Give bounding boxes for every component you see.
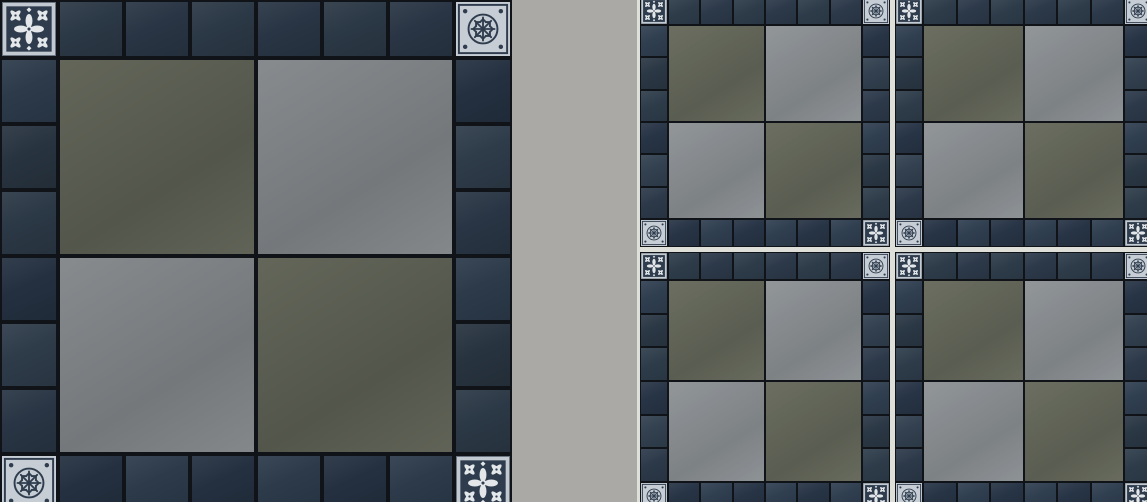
ornament-tile-snowflake: [1125, 253, 1147, 279]
border-tile: [641, 449, 667, 481]
border-tile: [896, 58, 922, 88]
border-tile: [1025, 483, 1057, 502]
border-tile: [390, 2, 452, 56]
border-tile: [641, 416, 667, 448]
ornament-tile-snowflake: [641, 220, 667, 246]
border-tile: [456, 126, 510, 188]
paver-tile-olive: [924, 26, 1023, 121]
border-tile: [734, 253, 764, 279]
border-tile: [924, 0, 956, 24]
snowflake-ornament-icon: [641, 220, 667, 246]
paver-tile-gray: [1025, 281, 1124, 380]
border-tile: [2, 126, 56, 188]
border-tile: [324, 456, 386, 502]
border-tile: [641, 58, 667, 88]
tile-pattern-preview: [0, 0, 1147, 502]
border-tile: [958, 220, 990, 246]
border-tile: [863, 123, 889, 153]
paver-tile-olive: [766, 123, 861, 218]
border-tile: [324, 2, 386, 56]
paver-tile-gray: [669, 123, 764, 218]
border-tile: [701, 253, 731, 279]
border-tile: [126, 456, 188, 502]
floral-ornament-icon: [456, 456, 510, 502]
border-tile: [863, 26, 889, 56]
tile-module: [0, 0, 512, 502]
border-tile: [641, 281, 667, 313]
border-tile: [958, 0, 990, 24]
border-tile: [863, 188, 889, 218]
border-tile: [734, 483, 764, 502]
border-tile: [1092, 483, 1124, 502]
paver-tile-gray: [924, 382, 1023, 481]
border-tile: [734, 220, 764, 246]
border-tile: [641, 348, 667, 380]
ornament-tile-floral: [863, 483, 889, 502]
border-tile: [192, 2, 254, 56]
border-tile: [831, 483, 861, 502]
border-tile: [896, 416, 922, 448]
border-tile: [863, 315, 889, 347]
panel-divider: [512, 0, 637, 502]
border-tile: [1058, 220, 1090, 246]
tile-module: [640, 0, 890, 247]
border-tile: [456, 324, 510, 386]
border-tile: [258, 456, 320, 502]
ornament-tile-snowflake: [1125, 0, 1147, 24]
border-tile: [1058, 253, 1090, 279]
border-tile: [1125, 281, 1147, 313]
border-tile: [641, 91, 667, 121]
snowflake-ornament-icon: [1125, 0, 1147, 24]
floral-ornament-icon: [2, 2, 56, 56]
border-tile: [60, 456, 122, 502]
border-tile: [958, 253, 990, 279]
border-tile: [641, 315, 667, 347]
snowflake-ornament-icon: [456, 2, 510, 56]
border-tile: [390, 456, 452, 502]
floral-ornament-icon: [863, 483, 889, 502]
module-detail-panel: [0, 0, 512, 502]
border-tile: [641, 382, 667, 414]
paver-tile-olive: [766, 382, 861, 481]
border-tile: [456, 60, 510, 122]
snowflake-ornament-icon: [1125, 253, 1147, 279]
border-tile: [1125, 315, 1147, 347]
snowflake-ornament-icon: [2, 456, 56, 502]
floral-ornament-icon: [1125, 220, 1147, 246]
border-tile: [669, 483, 699, 502]
border-tile: [896, 26, 922, 56]
border-tile: [798, 253, 828, 279]
border-tile: [1092, 0, 1124, 24]
border-tile: [701, 483, 731, 502]
border-tile: [1125, 416, 1147, 448]
border-tile: [1058, 483, 1090, 502]
floral-ornament-icon: [863, 220, 889, 246]
border-tile: [1058, 0, 1090, 24]
border-tile: [1092, 253, 1124, 279]
border-tile: [456, 258, 510, 320]
border-tile: [831, 253, 861, 279]
border-tile: [641, 26, 667, 56]
border-tile: [924, 483, 956, 502]
snowflake-ornament-icon: [896, 220, 922, 246]
border-tile: [60, 2, 122, 56]
border-tile: [456, 192, 510, 254]
floral-ornament-icon: [641, 253, 667, 279]
border-tile: [798, 0, 828, 24]
border-tile: [734, 0, 764, 24]
border-tile: [1125, 188, 1147, 218]
ornament-tile-snowflake: [896, 220, 922, 246]
border-tile: [863, 91, 889, 121]
border-tile: [126, 2, 188, 56]
border-tile: [2, 192, 56, 254]
ornament-tile-floral: [641, 0, 667, 24]
tile-module: [895, 252, 1147, 502]
paver-tile-olive: [1025, 382, 1124, 481]
paver-tile-olive: [258, 258, 452, 452]
border-tile: [2, 60, 56, 122]
border-tile: [192, 456, 254, 502]
border-tile: [2, 258, 56, 320]
border-tile: [766, 0, 796, 24]
paver-tile-olive: [60, 60, 254, 254]
ornament-tile-floral: [863, 220, 889, 246]
border-tile: [1125, 58, 1147, 88]
paver-tile-gray: [60, 258, 254, 452]
border-tile: [641, 188, 667, 218]
ornament-tile-floral: [1125, 220, 1147, 246]
border-tile: [1025, 0, 1057, 24]
border-tile: [766, 483, 796, 502]
border-tile: [896, 348, 922, 380]
tile-module: [895, 0, 1147, 247]
paver-tile-gray: [258, 60, 452, 254]
floral-ornament-icon: [896, 253, 922, 279]
border-tile: [991, 483, 1023, 502]
border-tile: [863, 281, 889, 313]
border-tile: [1125, 382, 1147, 414]
paver-tile-gray: [669, 382, 764, 481]
repeat-grid: [640, 0, 1147, 502]
floral-ornament-icon: [896, 0, 922, 24]
ornament-tile-snowflake: [896, 483, 922, 502]
ornament-tile-floral: [641, 253, 667, 279]
snowflake-ornament-icon: [863, 253, 889, 279]
border-tile: [641, 123, 667, 153]
ornament-tile-snowflake: [863, 0, 889, 24]
ornament-tile-floral: [1125, 483, 1147, 502]
border-tile: [1125, 91, 1147, 121]
paver-tile-olive: [669, 26, 764, 121]
border-tile: [896, 449, 922, 481]
border-tile: [701, 220, 731, 246]
border-tile: [669, 0, 699, 24]
border-tile: [1092, 220, 1124, 246]
ornament-tile-snowflake: [641, 483, 667, 502]
border-tile: [669, 253, 699, 279]
paver-tile-gray: [766, 281, 861, 380]
ornament-tile-snowflake: [863, 253, 889, 279]
snowflake-ornament-icon: [641, 483, 667, 502]
floral-ornament-icon: [1125, 483, 1147, 502]
ornament-tile-floral: [2, 2, 56, 56]
border-tile: [863, 155, 889, 185]
border-tile: [1125, 449, 1147, 481]
border-tile: [924, 220, 956, 246]
ornament-tile-snowflake: [456, 2, 510, 56]
border-tile: [896, 155, 922, 185]
border-tile: [831, 0, 861, 24]
border-tile: [896, 91, 922, 121]
border-tile: [1125, 155, 1147, 185]
border-tile: [1125, 26, 1147, 56]
border-tile: [2, 324, 56, 386]
border-tile: [958, 483, 990, 502]
paver-tile-olive: [924, 281, 1023, 380]
border-tile: [863, 449, 889, 481]
border-tile: [896, 281, 922, 313]
border-tile: [669, 220, 699, 246]
border-tile: [1125, 123, 1147, 153]
ornament-tile-floral: [896, 0, 922, 24]
border-tile: [2, 390, 56, 452]
border-tile: [831, 220, 861, 246]
border-tile: [896, 382, 922, 414]
border-tile: [456, 390, 510, 452]
border-tile: [701, 0, 731, 24]
border-tile: [863, 58, 889, 88]
border-tile: [1025, 253, 1057, 279]
paver-tile-gray: [1025, 26, 1124, 121]
border-tile: [798, 483, 828, 502]
tile-module: [640, 252, 890, 502]
border-tile: [863, 348, 889, 380]
border-tile: [258, 2, 320, 56]
border-tile: [896, 123, 922, 153]
paver-tile-olive: [669, 281, 764, 380]
border-tile: [991, 253, 1023, 279]
snowflake-ornament-icon: [896, 483, 922, 502]
border-tile: [991, 0, 1023, 24]
border-tile: [896, 315, 922, 347]
border-tile: [863, 416, 889, 448]
ornament-tile-floral: [896, 253, 922, 279]
border-tile: [1025, 220, 1057, 246]
border-tile: [641, 155, 667, 185]
paver-tile-gray: [766, 26, 861, 121]
border-tile: [766, 220, 796, 246]
border-tile: [863, 382, 889, 414]
border-tile: [991, 220, 1023, 246]
paver-tile-gray: [924, 123, 1023, 218]
border-tile: [924, 253, 956, 279]
border-tile: [896, 188, 922, 218]
border-tile: [798, 220, 828, 246]
ornament-tile-floral: [456, 456, 510, 502]
snowflake-ornament-icon: [863, 0, 889, 24]
ornament-tile-snowflake: [2, 456, 56, 502]
paver-tile-olive: [1025, 123, 1124, 218]
border-tile: [766, 253, 796, 279]
pattern-repeat-panel: [637, 0, 1147, 502]
floral-ornament-icon: [641, 0, 667, 24]
border-tile: [1125, 348, 1147, 380]
